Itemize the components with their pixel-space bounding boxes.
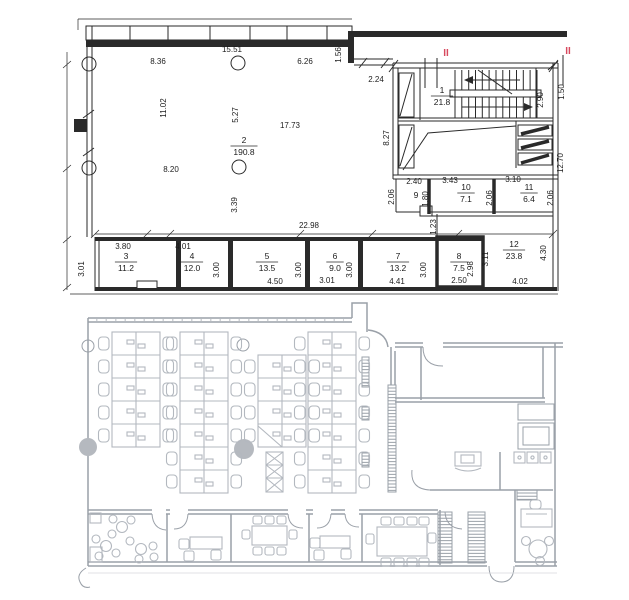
left-wall bbox=[63, 47, 94, 291]
dimension-label: 1.56 bbox=[334, 47, 343, 63]
desk-equipment bbox=[195, 386, 202, 390]
dimension-label: 3.39 bbox=[230, 197, 239, 213]
desk-equipment bbox=[195, 432, 202, 436]
hatch-lines bbox=[468, 515, 485, 560]
desk-equipment bbox=[273, 409, 280, 413]
desk-equipment bbox=[284, 413, 291, 417]
chair bbox=[231, 406, 242, 419]
dimension-label: 4.30 bbox=[539, 245, 548, 261]
dimension-label: 2.06 bbox=[485, 190, 494, 206]
storage-rack bbox=[266, 452, 283, 492]
dimension-label: 2.98 bbox=[466, 261, 475, 277]
desk-equipment bbox=[206, 344, 213, 348]
room-number: 3 bbox=[124, 251, 129, 261]
desk-equipment bbox=[284, 367, 291, 371]
section-cut-lines bbox=[425, 55, 563, 88]
door-arcs bbox=[152, 347, 514, 582]
chair bbox=[295, 406, 306, 419]
chair bbox=[309, 429, 320, 442]
room-area: 11.2 bbox=[118, 263, 134, 273]
dimension-label: 4.01 bbox=[175, 242, 191, 251]
dimension-label: 3.00 bbox=[345, 262, 354, 278]
dimension-label: 2.06 bbox=[546, 190, 555, 206]
desk-equipment bbox=[206, 436, 213, 440]
room-area: 23.8 bbox=[506, 251, 523, 261]
stair-risers bbox=[455, 70, 537, 118]
room-number: 11 bbox=[525, 182, 534, 192]
chair bbox=[309, 383, 320, 396]
hatched-wall bbox=[517, 490, 537, 500]
section-marker: II bbox=[443, 48, 449, 59]
lounge-furniture bbox=[90, 513, 158, 563]
hatch-lines bbox=[517, 493, 537, 499]
desk-equipment bbox=[206, 459, 213, 463]
dimension-label: 3.43 bbox=[442, 176, 458, 185]
room-number: 6 bbox=[333, 251, 338, 261]
elevator-boxes bbox=[518, 404, 554, 449]
entry-mark bbox=[79, 568, 90, 587]
dimension-label: 1.23 bbox=[429, 219, 438, 235]
chair bbox=[99, 383, 110, 396]
reception-furniture bbox=[521, 500, 554, 566]
desk-equipment bbox=[127, 409, 134, 413]
dimension-label: 22.98 bbox=[299, 221, 320, 230]
column bbox=[237, 339, 249, 351]
hatched-walls bbox=[362, 357, 537, 563]
riser-lines bbox=[455, 70, 537, 118]
walls bbox=[88, 303, 563, 566]
desk-equipment bbox=[334, 344, 341, 348]
chair bbox=[231, 475, 242, 488]
desk-equipment bbox=[127, 432, 134, 436]
dimension-label: 8.27 bbox=[382, 130, 391, 146]
chair bbox=[167, 475, 178, 488]
chair bbox=[167, 383, 178, 396]
room-number: 5 bbox=[265, 251, 270, 261]
dimension-label: 2.24 bbox=[368, 75, 384, 84]
desk-equipment bbox=[138, 436, 145, 440]
dimension-label: 3.01 bbox=[319, 276, 335, 285]
dimension-label: 12.70 bbox=[556, 152, 565, 173]
chair bbox=[359, 337, 370, 350]
office-room-furniture bbox=[310, 536, 351, 560]
hatch-lines bbox=[438, 515, 452, 560]
chair bbox=[231, 337, 242, 350]
chair bbox=[359, 429, 370, 442]
chair bbox=[167, 337, 178, 350]
chair bbox=[309, 360, 320, 373]
chair bbox=[99, 337, 110, 350]
hatch-lines bbox=[388, 388, 396, 490]
desk-equipment bbox=[284, 436, 291, 440]
window-band bbox=[78, 19, 352, 47]
chair bbox=[295, 383, 306, 396]
large-meeting-room-furniture bbox=[366, 517, 436, 566]
desk-divider bbox=[112, 332, 160, 447]
dimension-label: 15.51 bbox=[222, 45, 243, 54]
kitchenette bbox=[514, 452, 551, 463]
dimension-label: 2.40 bbox=[406, 177, 422, 186]
desk-equipment bbox=[127, 363, 134, 367]
desk-equipment bbox=[323, 386, 330, 390]
stair-block bbox=[389, 60, 558, 291]
desk-equipment bbox=[334, 436, 341, 440]
chair bbox=[163, 337, 174, 350]
desk-equipment bbox=[284, 390, 291, 394]
chair bbox=[295, 337, 306, 350]
desk-equipment bbox=[138, 413, 145, 417]
desk-equipment bbox=[138, 344, 145, 348]
chair bbox=[359, 452, 370, 465]
dimension-label: 6.26 bbox=[297, 57, 313, 66]
desk-equipment bbox=[138, 367, 145, 371]
stair-arrow-down bbox=[524, 103, 533, 111]
room-number: 1 bbox=[440, 85, 445, 95]
top-floor-plan bbox=[63, 19, 567, 294]
dimension-label: 3.11 bbox=[481, 251, 490, 267]
room-area: 13.2 bbox=[390, 263, 407, 273]
desk-equipment bbox=[273, 363, 280, 367]
room-number: 4 bbox=[190, 251, 195, 261]
chair bbox=[245, 360, 256, 373]
desk-divider bbox=[258, 355, 306, 447]
desk-equipment bbox=[323, 340, 330, 344]
chair bbox=[309, 406, 320, 419]
desk-equipment bbox=[273, 432, 280, 436]
chair bbox=[99, 429, 110, 442]
room-number: 9 bbox=[414, 190, 419, 200]
chair bbox=[167, 360, 178, 373]
dimension-label: 1.80 bbox=[421, 191, 430, 207]
desk-equipment bbox=[195, 455, 202, 459]
chair bbox=[295, 475, 306, 488]
desk-equipment bbox=[334, 413, 341, 417]
floorplan-drawing: 121.82190.8311.2412.0513.569.0713.287.51… bbox=[0, 0, 629, 600]
desk-equipment bbox=[206, 482, 213, 486]
desk-equipment bbox=[195, 478, 202, 482]
room-area: 12.0 bbox=[184, 263, 201, 273]
dimension-label: 11.02 bbox=[159, 98, 168, 118]
desk-equipment bbox=[195, 340, 202, 344]
dimension-label: 8.20 bbox=[163, 165, 179, 174]
bottom-floor-plan bbox=[79, 303, 563, 587]
room-number: 2 bbox=[242, 135, 247, 145]
wall-column bbox=[79, 438, 97, 456]
top-wall bbox=[348, 31, 567, 63]
desk-divider bbox=[308, 332, 356, 493]
dimension-label: 3.10 bbox=[505, 175, 521, 184]
desk-equipment bbox=[323, 432, 330, 436]
desk-equipment bbox=[334, 459, 341, 463]
desk-equipment bbox=[195, 409, 202, 413]
room-number: 8 bbox=[457, 251, 462, 261]
room-area: 7.1 bbox=[460, 194, 472, 204]
dimension-label: 2.06 bbox=[387, 189, 396, 205]
desk-equipment bbox=[323, 363, 330, 367]
chair bbox=[167, 429, 178, 442]
office-desk-area bbox=[99, 332, 370, 493]
desk-equipment bbox=[206, 390, 213, 394]
desk-equipment bbox=[334, 367, 341, 371]
chair bbox=[163, 360, 174, 373]
chair bbox=[167, 452, 178, 465]
desk-equipment bbox=[138, 390, 145, 394]
chair bbox=[359, 406, 370, 419]
copier bbox=[455, 452, 481, 471]
dimension-label: 3.00 bbox=[212, 262, 221, 278]
chair bbox=[99, 406, 110, 419]
office-room-furniture bbox=[179, 537, 222, 561]
desk-equipment bbox=[334, 482, 341, 486]
dimension-label: 2.90 bbox=[536, 92, 545, 108]
dimension-label: 4.41 bbox=[389, 277, 405, 286]
step-wall bbox=[354, 58, 393, 68]
dimension-label: 5.27 bbox=[231, 107, 240, 123]
desk-divider bbox=[180, 332, 228, 493]
chair bbox=[295, 452, 306, 465]
dimension-label: 4.50 bbox=[267, 277, 283, 286]
floorplan-page: 121.82190.8311.2412.0513.569.0713.287.51… bbox=[0, 0, 629, 600]
chair bbox=[163, 406, 174, 419]
room-number: 12 bbox=[509, 239, 519, 249]
desk-equipment bbox=[323, 478, 330, 482]
section-marker: II bbox=[565, 46, 571, 57]
dimension-label: 3.01 bbox=[77, 261, 86, 277]
chair bbox=[295, 429, 306, 442]
chair bbox=[231, 360, 242, 373]
chair bbox=[245, 383, 256, 396]
room-area: 9.0 bbox=[329, 263, 341, 273]
chair bbox=[295, 360, 306, 373]
dimension-line bbox=[91, 230, 557, 238]
desk-equipment bbox=[195, 363, 202, 367]
shafts bbox=[516, 121, 552, 168]
chair bbox=[163, 429, 174, 442]
dimension-label: 3.00 bbox=[294, 262, 303, 278]
chair bbox=[359, 475, 370, 488]
dimension-labels: 15.518.366.261.562.2411.025.2717.738.203… bbox=[77, 45, 566, 286]
dimension-label: 17.73 bbox=[280, 121, 301, 130]
desk-equipment bbox=[206, 367, 213, 371]
dimension-label: 3.80 bbox=[115, 242, 131, 251]
chair bbox=[359, 383, 370, 396]
room-area: 21.8 bbox=[434, 97, 451, 107]
desk-equipment bbox=[127, 340, 134, 344]
desk-equipment bbox=[323, 409, 330, 413]
room-area: 7.5 bbox=[453, 263, 465, 273]
meeting-room-furniture bbox=[242, 516, 297, 555]
dimension-label: 8.36 bbox=[150, 57, 166, 66]
chair bbox=[231, 383, 242, 396]
section-markers: IIII bbox=[443, 46, 571, 59]
room-area: 190.8 bbox=[233, 147, 255, 157]
room-area: 13.5 bbox=[259, 263, 276, 273]
dimension-label: 4.02 bbox=[512, 277, 528, 286]
dimension-label: 3.00 bbox=[419, 262, 428, 278]
chair bbox=[245, 406, 256, 419]
desk-equipment bbox=[273, 386, 280, 390]
dimension-label: 1.50 bbox=[557, 84, 566, 100]
desk-equipment bbox=[334, 390, 341, 394]
chair bbox=[99, 360, 110, 373]
desk-equipment bbox=[206, 413, 213, 417]
desk-equipment bbox=[127, 386, 134, 390]
dimension-label: 2.50 bbox=[451, 276, 467, 285]
chair bbox=[167, 406, 178, 419]
chair bbox=[163, 383, 174, 396]
room-number: 7 bbox=[396, 251, 401, 261]
room-area: 6.4 bbox=[523, 194, 535, 204]
desk-equipment bbox=[323, 455, 330, 459]
room-number: 10 bbox=[461, 182, 471, 192]
